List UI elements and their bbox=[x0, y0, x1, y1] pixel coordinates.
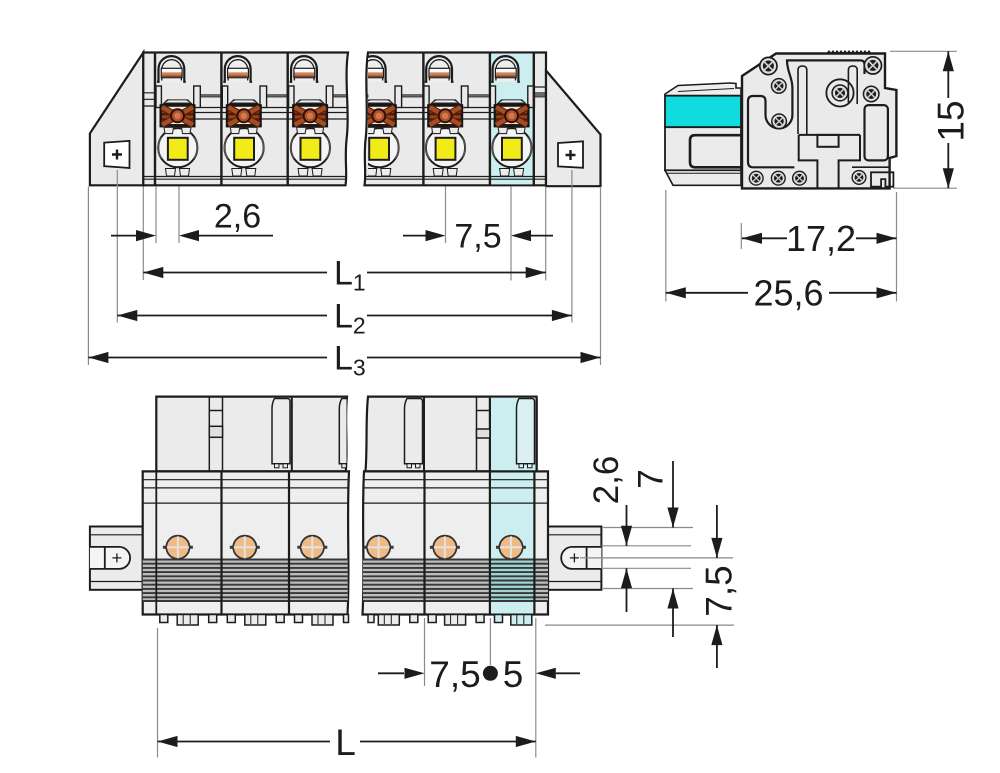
svg-text:2,6: 2,6 bbox=[214, 198, 261, 236]
svg-text:17,2: 17,2 bbox=[786, 218, 856, 259]
svg-text:25,6: 25,6 bbox=[753, 272, 823, 313]
svg-text:L3: L3 bbox=[334, 340, 366, 381]
svg-text:15: 15 bbox=[931, 100, 972, 141]
svg-text:7,5: 7,5 bbox=[454, 218, 501, 256]
svg-text:7,5: 7,5 bbox=[699, 565, 740, 616]
svg-text:2,6: 2,6 bbox=[587, 456, 626, 505]
svg-text:7,5: 7,5 bbox=[429, 654, 480, 695]
svg-text:L2: L2 bbox=[334, 298, 366, 339]
svg-text:L: L bbox=[335, 722, 356, 763]
svg-text:L1: L1 bbox=[334, 255, 366, 296]
svg-text:7: 7 bbox=[632, 469, 671, 488]
svg-text:5: 5 bbox=[503, 654, 524, 695]
